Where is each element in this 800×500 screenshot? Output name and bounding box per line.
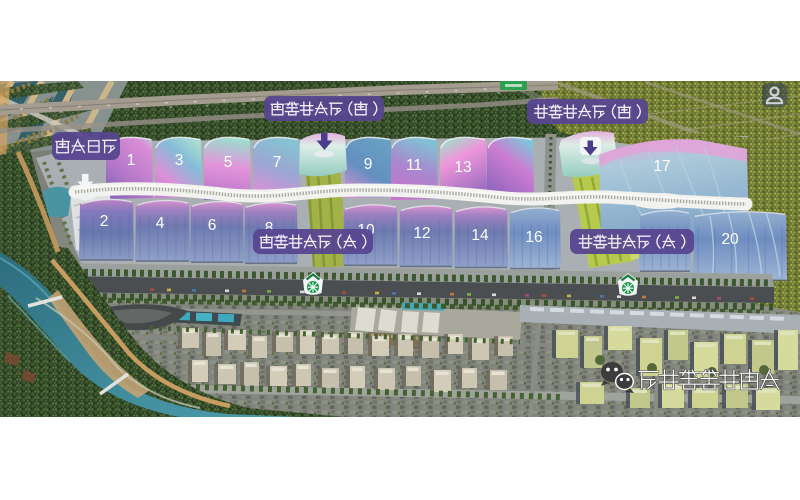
svg-text:9: 9 bbox=[364, 156, 373, 173]
svg-text:12: 12 bbox=[413, 225, 430, 242]
svg-text:13: 13 bbox=[454, 159, 471, 176]
svg-text:6: 6 bbox=[208, 217, 217, 234]
svg-text:4: 4 bbox=[156, 215, 165, 232]
svg-text:3: 3 bbox=[175, 152, 184, 169]
svg-text:16: 16 bbox=[525, 229, 542, 246]
svg-text:20: 20 bbox=[721, 231, 739, 248]
svg-text:14: 14 bbox=[471, 227, 489, 244]
svg-text:17: 17 bbox=[653, 158, 670, 175]
svg-text:7: 7 bbox=[273, 154, 282, 171]
svg-text:11: 11 bbox=[406, 157, 422, 174]
svg-text:5: 5 bbox=[224, 154, 233, 171]
svg-text:2: 2 bbox=[100, 213, 109, 230]
svg-text:1: 1 bbox=[127, 152, 136, 169]
